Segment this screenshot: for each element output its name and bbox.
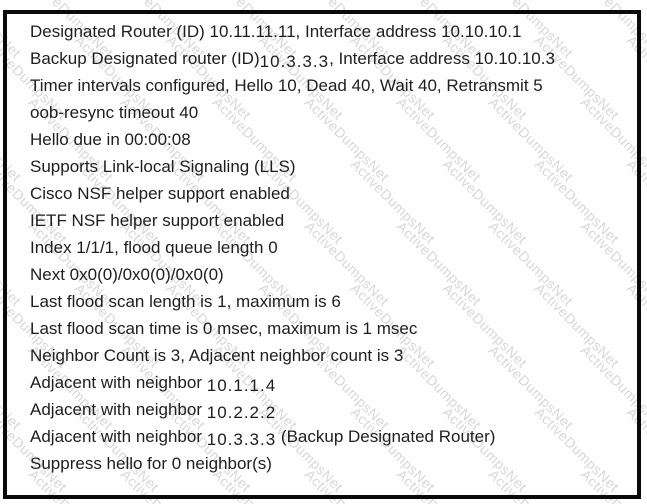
console-text-segment: oob-resync timeout 40 — [30, 103, 198, 122]
console-line: Cisco NSF helper support enabled — [30, 180, 633, 207]
console-line: Hello due in 00:00:08 — [30, 126, 633, 153]
console-line: oob-resync timeout 40 — [30, 99, 633, 126]
console-line: Adjacent with neighbor 10.3.3.3 (Backup … — [30, 423, 633, 450]
console-lines: Designated Router (ID) 10.11.11.11, Inte… — [30, 18, 633, 477]
console-text-segment: Next 0x0(0)/0x0(0)/0x0(0) — [30, 265, 224, 284]
console-line: Last flood scan time is 0 msec, maximum … — [30, 315, 633, 342]
console-text-segment: Backup Designated router (ID) — [30, 49, 260, 68]
ip-address-edited: 10.2.2.2 — [207, 403, 276, 422]
console-text-segment: Neighbor Count is 3, Adjacent neighbor c… — [30, 346, 403, 365]
console-line: IETF NSF helper support enabled — [30, 207, 633, 234]
console-line: Timer intervals configured, Hello 10, De… — [30, 72, 633, 99]
console-text-segment: Last flood scan time is 0 msec, maximum … — [30, 319, 417, 338]
console-output-box: Designated Router (ID) 10.11.11.11, Inte… — [3, 10, 641, 499]
console-line: Last flood scan length is 1, maximum is … — [30, 288, 633, 315]
console-text-segment: Supports Link-local Signaling (LLS) — [30, 157, 296, 176]
console-text-segment: Adjacent with neighbor — [30, 373, 207, 392]
console-text-segment: Adjacent with neighbor — [30, 427, 207, 446]
console-line: Adjacent with neighbor 10.2.2.2 — [30, 396, 633, 423]
console-line: Designated Router (ID) 10.11.11.11, Inte… — [30, 18, 633, 45]
console-line: Supports Link-local Signaling (LLS) — [30, 153, 633, 180]
console-line: Index 1/1/1, flood queue length 0 — [30, 234, 633, 261]
console-text-segment: Cisco NSF helper support enabled — [30, 184, 290, 203]
ip-address-edited: 10.1.1.4 — [207, 376, 276, 395]
console-text-segment: IETF NSF helper support enabled — [30, 211, 284, 230]
console-line: Adjacent with neighbor 10.1.1.4 — [30, 369, 633, 396]
console-text-segment: Timer intervals configured, Hello 10, De… — [30, 76, 543, 95]
console-text-segment: , Interface address 10.10.10.3 — [329, 49, 555, 68]
console-line: Backup Designated router (ID)10.3.3.3, I… — [30, 45, 633, 72]
ip-address-edited: 10.3.3.3 — [207, 430, 276, 449]
screenshot-stage: ActiveDumpsNetActiveDumpsNetActiveDumpsN… — [0, 0, 647, 504]
console-text-segment: (Backup Designated Router) — [276, 427, 495, 446]
console-text-segment: Suppress hello for 0 neighbor(s) — [30, 454, 272, 473]
console-line: Next 0x0(0)/0x0(0)/0x0(0) — [30, 261, 633, 288]
ip-address-edited: 10.3.3.3 — [260, 52, 329, 71]
console-text-segment: Last flood scan length is 1, maximum is … — [30, 292, 341, 311]
console-text-segment: Index 1/1/1, flood queue length 0 — [30, 238, 278, 257]
console-line: Neighbor Count is 3, Adjacent neighbor c… — [30, 342, 633, 369]
console-line: Suppress hello for 0 neighbor(s) — [30, 450, 633, 477]
console-text-segment: Hello due in 00:00:08 — [30, 130, 191, 149]
console-text-segment: Adjacent with neighbor — [30, 400, 207, 419]
console-text-segment: Designated Router (ID) 10.11.11.11, Inte… — [30, 22, 521, 41]
